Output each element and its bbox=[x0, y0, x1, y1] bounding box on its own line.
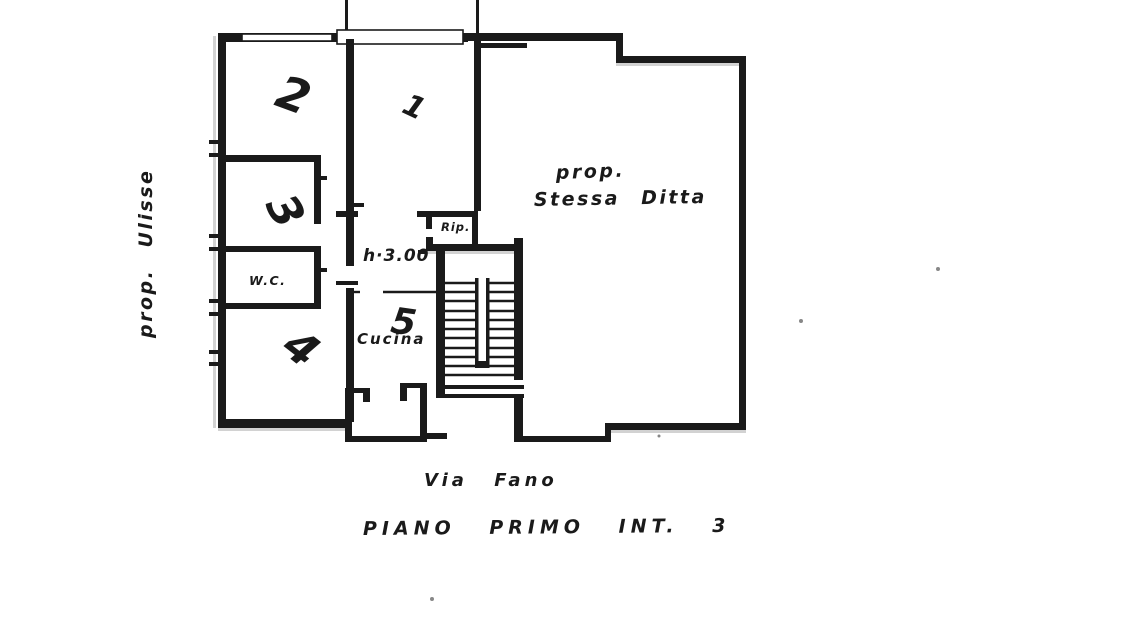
floor-plan-drawing: 1 2 3 4 5 W.C. Rip. h·3.00 Cucina prop. … bbox=[0, 0, 1126, 630]
staircase bbox=[436, 250, 524, 398]
big-room-owner-line2: Stessa Ditta bbox=[534, 186, 707, 211]
ceiling-height-label: h·3.00 bbox=[363, 246, 430, 266]
floor-caption: PIANO PRIMO INT. 3 bbox=[363, 515, 731, 540]
big-room-owner-line1: prop. bbox=[554, 160, 625, 184]
door-marks bbox=[314, 176, 427, 285]
room-number-3: 3 bbox=[255, 186, 314, 237]
scan-noise bbox=[430, 267, 940, 601]
owner-left-label: prop. Ulisse bbox=[135, 169, 157, 339]
street-caption: Via Fano bbox=[424, 470, 558, 491]
room-number-2: 2 bbox=[269, 64, 318, 126]
room-number-hall: 1 bbox=[397, 87, 431, 128]
balcony bbox=[345, 383, 427, 442]
scanned-floor-plan-page: 1 2 3 4 5 W.C. Rip. h·3.00 Cucina prop. … bbox=[0, 0, 1126, 630]
room-number-4: 4 bbox=[272, 318, 328, 378]
kitchen-label: Cucina bbox=[357, 330, 426, 348]
wc-label: W.C. bbox=[249, 273, 286, 288]
closet-label: Rip. bbox=[441, 220, 470, 234]
